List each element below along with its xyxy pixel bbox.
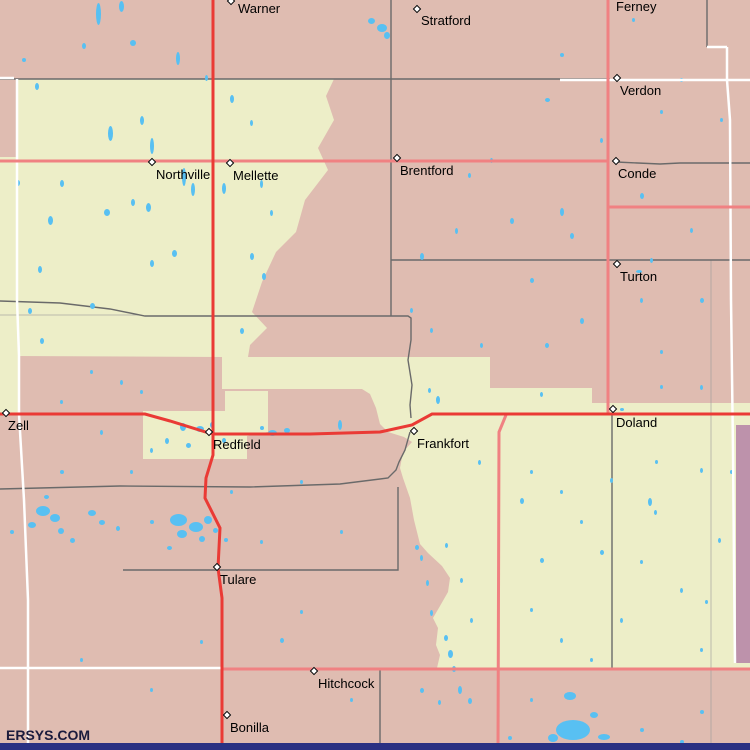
lake [650,258,653,263]
lake [660,110,663,114]
lake [250,120,253,126]
lake [120,380,123,385]
lake [165,438,169,444]
lake [167,546,172,550]
lake [598,734,610,740]
map-viewport[interactable]: WarnerStratfordFerneyVerdonNorthvilleMel… [0,0,750,750]
lake [172,250,177,257]
lake [104,209,110,216]
lake [90,303,95,309]
lake [540,558,544,563]
lake [384,32,390,39]
lake [262,273,266,280]
lake [508,736,512,740]
lake [10,530,14,534]
lake [480,343,483,348]
lake [28,522,36,528]
lake [377,24,387,32]
lake [150,688,153,692]
lake [445,543,448,548]
lake [680,588,683,593]
lake [545,98,550,102]
lake [150,448,153,453]
lake [700,468,703,473]
lake [182,168,186,186]
lake [140,116,144,125]
lake [48,216,53,225]
lake [530,278,534,283]
lake [560,490,563,494]
lake [590,658,593,662]
lake [191,183,195,196]
lake [186,443,191,448]
lake [230,490,233,494]
lake [410,308,413,313]
lake [640,560,643,564]
lake [560,638,563,643]
lake [430,610,433,616]
lake [60,400,63,404]
lake [430,328,433,333]
lake [176,52,180,65]
lake [368,18,375,24]
lake [177,530,187,538]
lake [700,298,704,303]
lake [564,692,576,700]
lake [718,538,721,543]
lake [460,578,463,583]
lake [189,522,203,532]
lake [146,203,151,212]
lake [40,338,44,344]
lake [60,180,64,187]
lake [415,545,419,550]
lake [58,528,64,534]
lake [230,95,234,103]
lake [660,350,663,354]
lake [700,648,703,652]
lake [690,228,693,233]
lake [35,83,39,90]
lake [455,228,458,234]
bottom-border-bar [0,743,750,750]
lake [260,426,264,430]
region-purple-east [736,425,750,663]
lake [448,650,453,658]
lake [580,318,584,324]
lake [530,608,533,612]
lake [150,138,154,154]
lake [300,480,303,484]
lake [436,396,440,404]
lake [96,3,101,25]
lake [88,510,96,516]
lake [648,498,652,506]
lake [205,75,208,81]
lake [632,18,635,22]
lake [478,460,481,465]
lake [284,428,290,433]
lake [660,385,663,389]
lake [200,640,203,644]
lake [170,514,187,526]
lake [280,638,284,643]
lake [28,308,32,314]
lake [438,700,441,705]
lake [510,218,514,224]
lake [350,698,353,702]
lake [199,536,205,542]
lake [108,126,113,141]
lake [468,173,471,178]
lake [580,520,583,524]
lake [130,40,136,46]
lake [70,538,75,543]
lake [90,370,93,374]
lake [204,516,212,524]
lake [240,328,244,334]
lake [720,118,723,122]
lake [22,58,26,62]
lake [340,530,343,534]
lake [60,470,64,474]
lake [50,514,60,522]
lake [270,210,273,216]
lake [540,392,543,397]
lake [570,233,574,239]
lake [640,193,644,199]
lake [640,728,644,732]
lake [150,260,154,267]
lake [560,208,564,216]
lake [636,270,642,273]
lake [705,600,708,604]
lake [420,555,423,561]
lake [700,710,704,714]
lake [260,180,263,188]
lake [640,298,643,303]
lake [556,720,590,740]
lake [548,734,558,742]
lake [130,470,133,474]
lake [150,520,154,524]
lake [131,199,135,206]
lake [620,408,624,411]
lake [530,698,533,702]
lake [140,390,143,394]
lake [224,538,228,542]
lake [300,610,303,614]
lake [600,550,604,555]
lake [545,343,549,348]
lake [530,470,533,474]
lake [700,385,703,390]
lake [116,526,120,531]
lake [654,510,657,515]
lake [82,43,86,49]
lake [100,430,103,435]
lake [428,388,431,393]
lake [520,498,524,504]
lake [560,53,564,57]
lake [444,635,448,641]
map-canvas[interactable] [0,0,750,750]
lake [260,540,263,544]
lake [620,618,623,623]
lake [213,528,218,533]
lake [80,658,83,662]
lake [420,688,424,693]
lake [338,420,342,430]
lake [44,495,49,499]
lake [250,253,254,260]
lake [222,438,226,443]
lake [420,253,424,260]
lake [600,138,603,143]
lake [470,618,473,623]
lake [38,266,42,273]
lake [468,698,472,704]
attribution-watermark: ERSYS.COM [6,727,90,743]
lake [119,1,124,12]
lake [458,686,462,694]
lake [222,183,226,194]
lake [426,580,429,586]
lake [610,478,613,483]
lake [655,460,658,464]
lake [36,506,50,516]
lake [99,520,105,525]
lake [590,712,598,718]
